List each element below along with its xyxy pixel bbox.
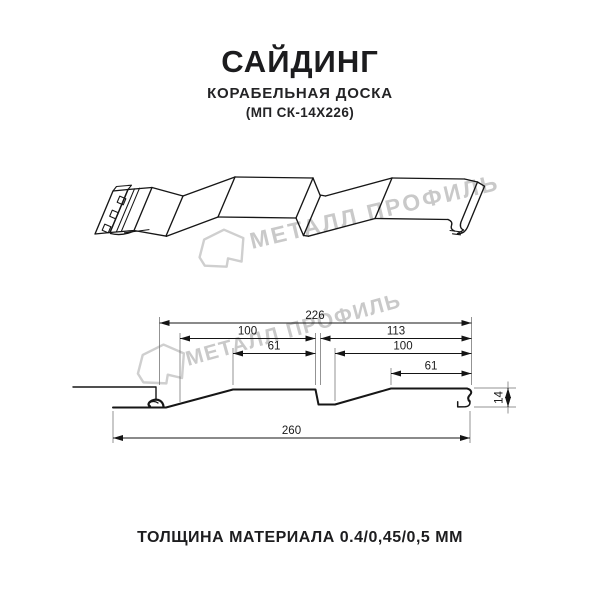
watermark-brand-text: МЕТАЛЛ ПРОФИЛЬ [247,169,502,254]
lock-seam-curl [149,400,164,407]
nail-hole [102,224,111,233]
dim-label-100-left: 100 [238,326,257,338]
footer-note: ТОЛЩИНА МАТЕРИАЛА 0.4/0,45/0,5 ММ [0,529,600,547]
material-thickness-note: ТОЛЩИНА МАТЕРИАЛА 0.4/0,45/0,5 ММ [0,529,600,547]
dim-label-113: 113 [387,326,405,338]
dimension-lines [113,323,508,438]
profile-end-hook [458,401,470,407]
adjacent-panel-edge [73,387,156,400]
lock-fold [110,188,152,235]
product-drawing-page: САЙДИНГ КОРАБЕЛЬНАЯ ДОСКА (МП СК-14Х226)… [0,0,600,600]
profile-outline [113,389,471,408]
dim-label-61-right: 61 [425,361,438,373]
dim-label-100-right: 100 [393,341,412,353]
dim-label-260: 260 [282,425,301,437]
dim-label-226: 226 [305,310,324,322]
watermark-3d-view: МЕТАЛЛ ПРОФИЛЬ [196,169,502,270]
cross-section-view [73,387,471,408]
watermark-brand-text: МЕТАЛЛ ПРОФИЛЬ [183,289,404,371]
metal-profil-logo-icon [196,227,247,270]
technical-drawing: МЕТАЛЛ ПРОФИЛЬ МЕТАЛЛ ПРОФИЛЬ [0,0,600,600]
dim-label-14: 14 [494,391,506,404]
dim-label-61-left: 61 [268,341,281,353]
lock-seam-curl-inner [150,401,159,403]
